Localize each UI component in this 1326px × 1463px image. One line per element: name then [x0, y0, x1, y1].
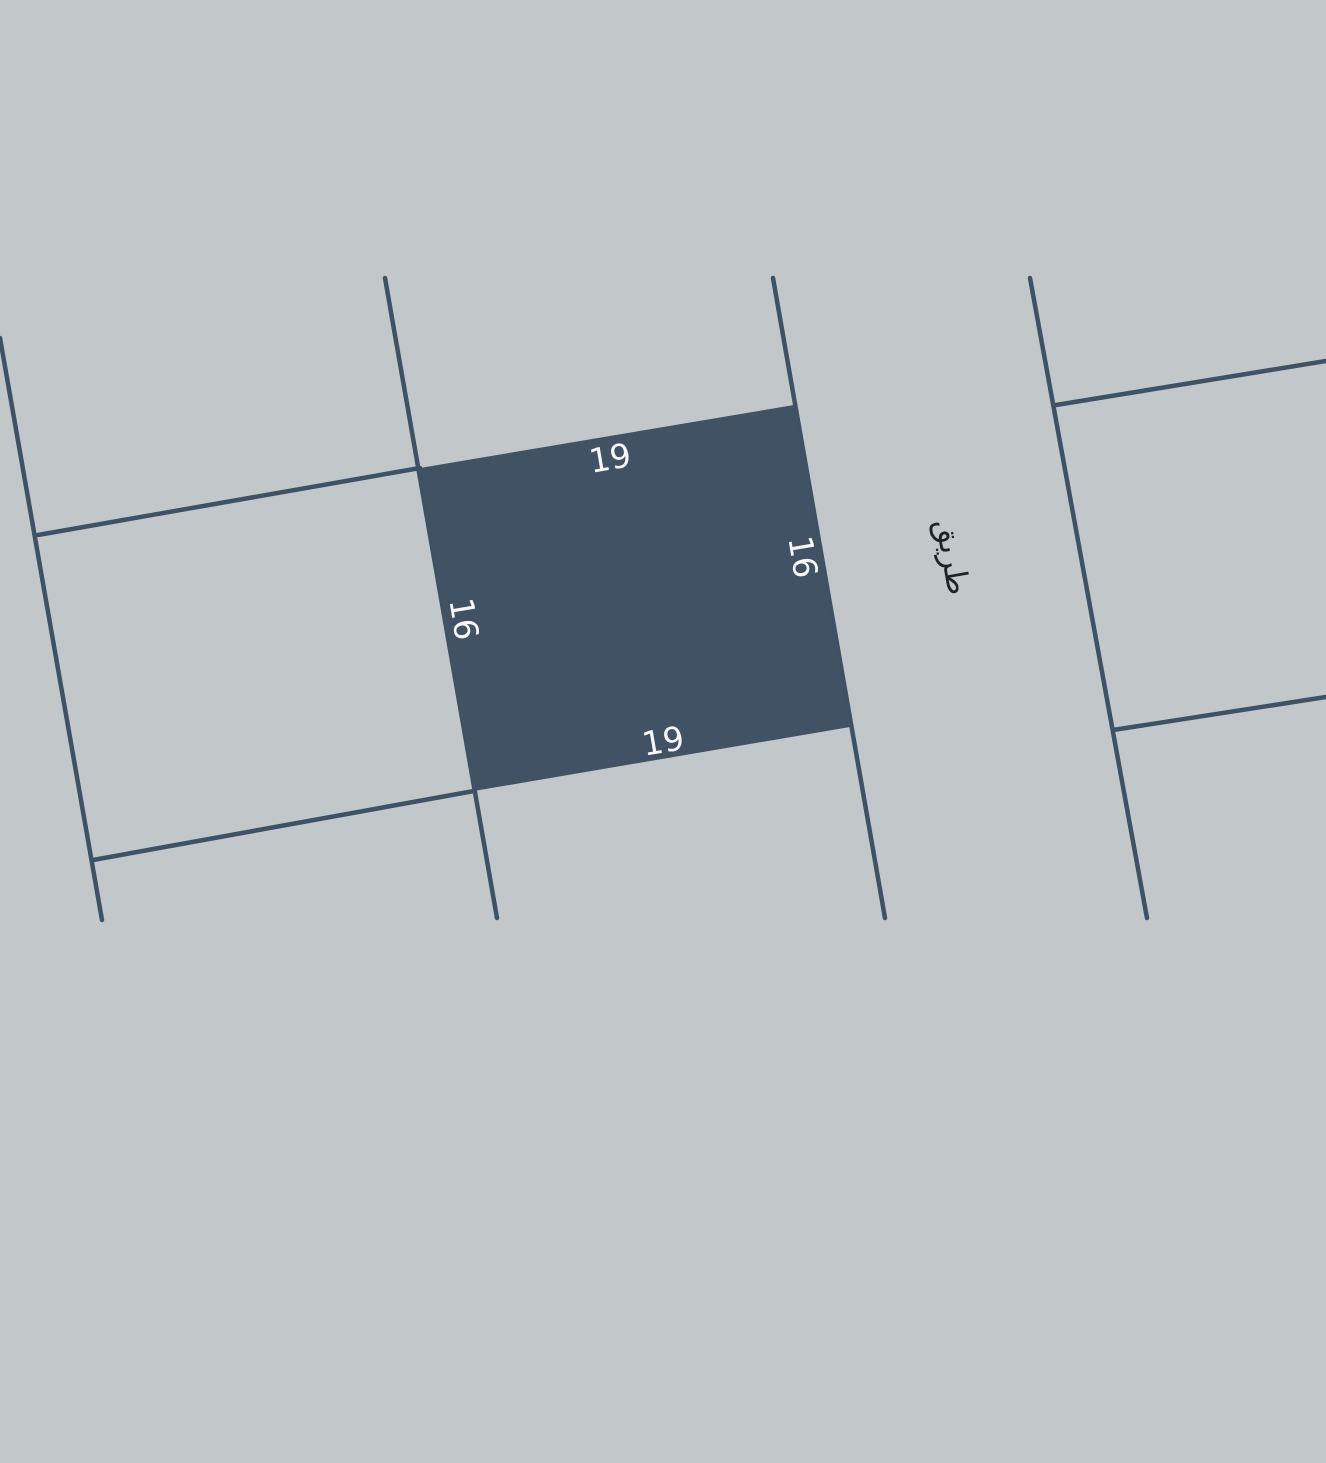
map-canvas: 19 19 16 16 طريق: [0, 0, 1326, 1463]
parcel-dim-left-label: 16: [441, 595, 486, 643]
cadastral-map: 19 19 16 16 طريق: [0, 0, 1326, 1463]
parcel-dim-top-label: 19: [586, 435, 634, 480]
parcel-dim-right-label: 16: [780, 533, 825, 581]
highlighted-parcel[interactable]: [420, 405, 850, 791]
parcel-dim-bottom-label: 19: [639, 718, 687, 764]
